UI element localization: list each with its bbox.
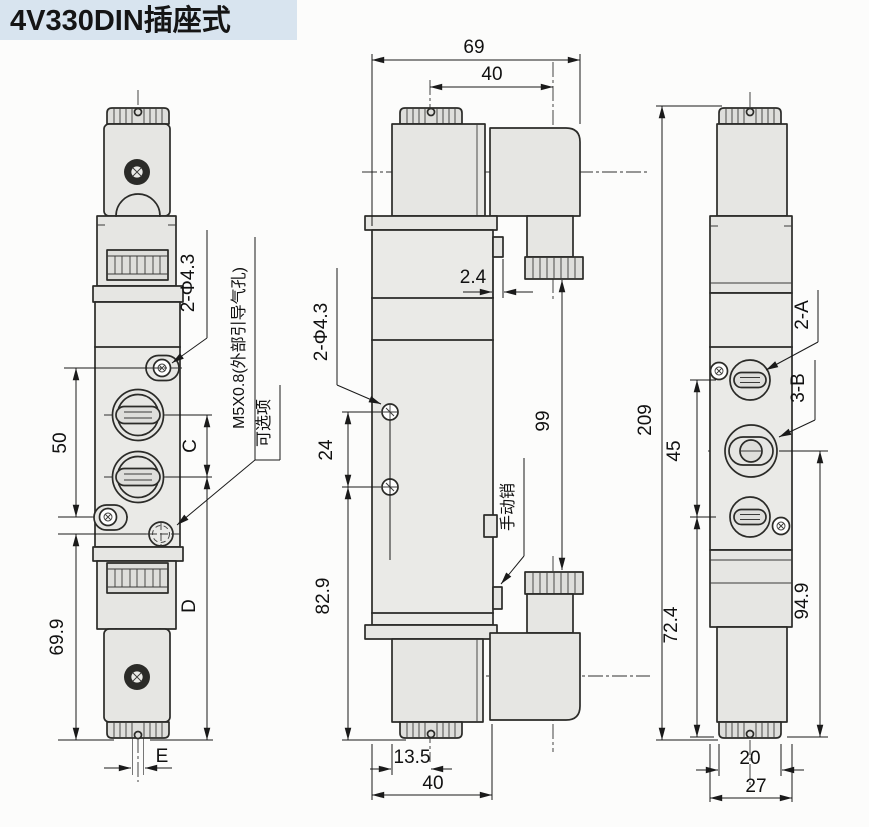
front-mount-screw-bottom: [100, 509, 117, 526]
end-mount-screw-top: [711, 363, 728, 380]
dim-D: D: [179, 599, 200, 613]
dim-C: C: [180, 439, 201, 453]
manual-pin-label: 手动销: [499, 483, 517, 531]
end-port-c: [730, 497, 770, 537]
end-port-b: [725, 425, 777, 477]
end-top-coil: [717, 124, 787, 216]
end-bottom-coil: [717, 627, 787, 722]
dim-40: 40: [481, 64, 502, 85]
side-din-nut-top: [525, 257, 583, 279]
valve-dimension-drawing: 4V330DIN插座式 50: [0, 0, 869, 827]
dimension-drawing-page: 4V330DIN插座式 50: [0, 0, 869, 827]
front-bottom-plate: [93, 547, 183, 561]
port-b-label: 3-B: [788, 373, 809, 403]
front-m5-pilot-port: [149, 522, 173, 546]
side-din-stem-top: [527, 216, 573, 257]
side-top-coil: [392, 124, 485, 216]
manual-pin: [493, 587, 502, 609]
side-bottom-coil: [392, 639, 483, 722]
dim-45: 45: [664, 440, 685, 461]
m5-port-label: M5X0.8(外部引导气孔): [230, 267, 248, 429]
front-top-cap-pin: [135, 109, 142, 116]
front-mount-holes-label: 2-Φ4.3: [178, 254, 199, 312]
front-port-1: [113, 390, 164, 441]
dim-13-5: 13.5: [394, 747, 431, 768]
end-port-a: [730, 360, 770, 400]
dim-2-4: 2.4: [460, 267, 487, 288]
side-tab: [493, 237, 503, 257]
page-title: 4V330DIN插座式: [10, 3, 231, 37]
dim-82-9: 82.9: [313, 578, 334, 615]
front-top-coil-screw: [124, 159, 150, 185]
front-port-2: [113, 452, 164, 503]
side-din-nut-bottom: [525, 572, 583, 594]
dim-72-4: 72.4: [661, 606, 682, 643]
side-bottom-plate: [365, 625, 497, 639]
side-din-stem-bottom: [527, 594, 573, 633]
dim-94-9: 94.9: [792, 583, 813, 620]
front-bottom-coil-screw: [124, 664, 150, 690]
dim-99: 99: [533, 410, 554, 431]
dim-209: 209: [635, 404, 656, 436]
dim-24: 24: [316, 439, 337, 461]
side-top-plate: [365, 216, 497, 230]
front-top-plate: [93, 286, 183, 302]
optional-label: 可选项: [255, 399, 273, 447]
front-bottom-ring: [107, 563, 168, 593]
port-a-label: 2-A: [792, 300, 813, 330]
dim-50: 50: [50, 432, 71, 453]
dim-E: E: [156, 746, 169, 767]
dim-69: 69: [463, 37, 484, 58]
side-mount-holes-label: 2-Φ4.3: [311, 303, 332, 361]
end-top-connector: [710, 216, 792, 293]
title-banner: 4V330DIN插座式: [0, 0, 297, 40]
side-din-connector-top: [490, 128, 580, 216]
side-pilot-boss: [484, 515, 497, 537]
front-bottom-cap-pin: [135, 732, 142, 739]
dim-40b: 40: [422, 773, 443, 794]
dim-27: 27: [745, 776, 766, 797]
front-top-ring: [107, 250, 168, 280]
dim-69-9: 69.9: [47, 619, 68, 656]
side-mount-hole-1: [382, 404, 398, 420]
side-din-connector-bottom: [490, 633, 580, 720]
end-bottom-connector: [710, 550, 792, 627]
end-mount-screw-bottom: [773, 518, 790, 535]
dim-20: 20: [739, 748, 760, 769]
